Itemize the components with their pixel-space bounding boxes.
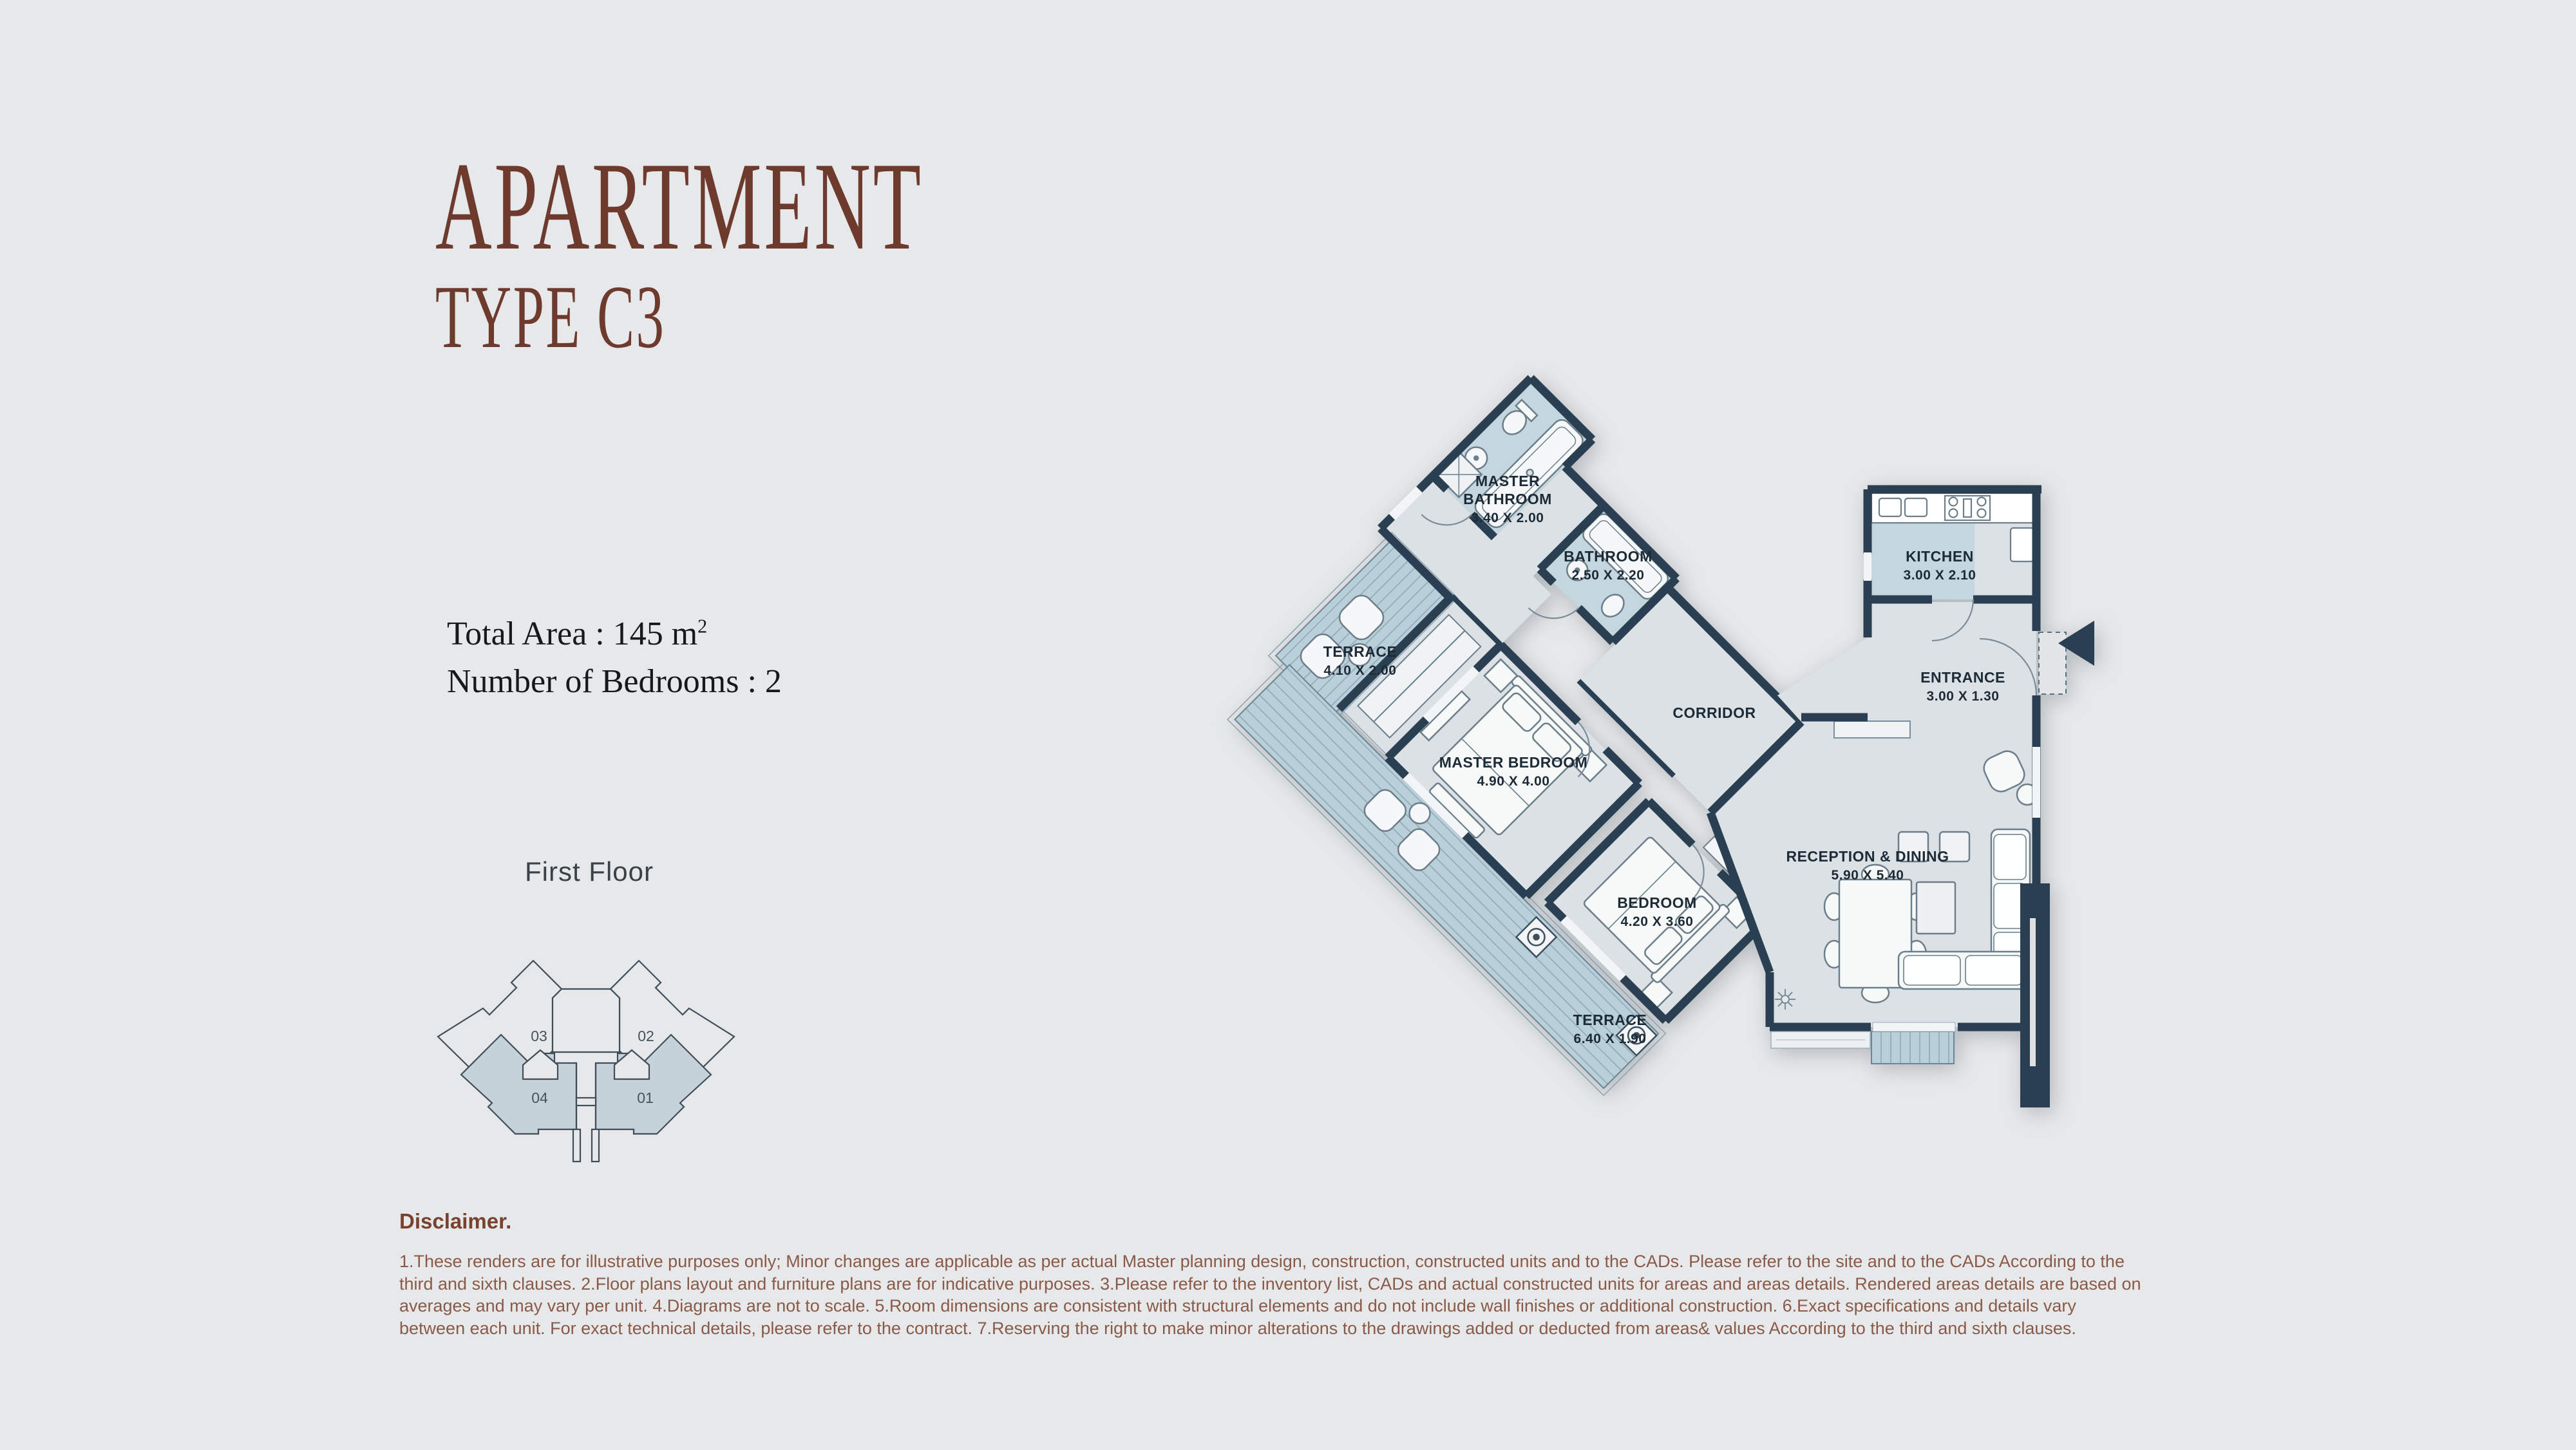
label-kitchen: KITCHEN — [1906, 548, 1974, 565]
bedrooms-line: Number of Bedrooms : 2 — [447, 658, 782, 706]
key-plan-outline — [438, 961, 734, 1162]
disclaimer: Disclaimer. 1.These renders are for illu… — [399, 1209, 2141, 1339]
page-title: APARTMENT — [435, 134, 923, 279]
floor-name: First Floor — [428, 856, 750, 887]
balcony — [1871, 1031, 1954, 1064]
label-corridor: CORRIDOR — [1672, 704, 1756, 721]
kitchen-sink — [1879, 498, 1901, 516]
svg-text:3.40 X 2.00: 3.40 X 2.00 — [1472, 511, 1544, 525]
label-entrance: ENTRANCE — [1920, 669, 2005, 686]
label-terrace-2: TERRACE — [1573, 1012, 1647, 1028]
label-bathroom: BATHROOM — [1564, 548, 1653, 565]
key-plan-unit-04: 04 — [531, 1089, 548, 1106]
svg-text:BATHROOM: BATHROOM — [1463, 491, 1552, 507]
kitchen-sink — [1905, 498, 1927, 516]
disclaimer-title: Disclaimer. — [399, 1209, 2141, 1234]
label-bedroom: BEDROOM — [1617, 894, 1697, 911]
label-terrace-1: TERRACE — [1323, 643, 1397, 660]
floor-plan: MASTER BATHROOM 3.40 X 2.00 BATHROOM 2.5… — [1224, 335, 2125, 1107]
svg-text:5.90 X 5.40: 5.90 X 5.40 — [1832, 868, 1904, 883]
key-plan-core — [553, 989, 620, 1052]
fridge — [2011, 528, 2034, 561]
building-key-plan: 03 02 04 01 — [425, 941, 760, 1173]
svg-text:4.10 X 2.00: 4.10 X 2.00 — [1324, 663, 1397, 678]
squared-sup: 2 — [697, 616, 707, 637]
total-area-line: Total Area : 145 m2 — [447, 610, 782, 658]
apartment-details: Total Area : 145 m2 Number of Bedrooms :… — [447, 610, 782, 706]
key-plan-unit-03: 03 — [531, 1028, 547, 1044]
svg-text:3.00 X 2.10: 3.00 X 2.10 — [1904, 568, 1976, 583]
svg-text:2.50 X 2.20: 2.50 X 2.20 — [1572, 568, 1645, 583]
entry-console — [1834, 721, 1910, 738]
axis-wing — [1710, 489, 2094, 1107]
coffee-table — [1917, 882, 1955, 934]
svg-text:4.90 X 4.00: 4.90 X 4.00 — [1477, 774, 1550, 789]
label-reception: RECEPTION & DINING — [1786, 848, 1949, 865]
svg-text:4.20 X 3.60: 4.20 X 3.60 — [1621, 914, 1694, 929]
label-master-bedroom: MASTER BEDROOM — [1439, 754, 1588, 771]
key-plan-unit-02: 02 — [638, 1028, 654, 1044]
disclaimer-body: 1.These renders are for illustrative pur… — [399, 1250, 2141, 1339]
page: APARTMENT TYPE C3 Total Area : 145 m2 Nu… — [0, 0, 2576, 1450]
key-plan-unit-01: 01 — [637, 1089, 654, 1106]
label-master-bathroom: MASTER — [1475, 473, 1540, 489]
apartment-type: TYPE C3 — [435, 265, 665, 369]
svg-text:6.40 X 1.90: 6.40 X 1.90 — [1574, 1031, 1647, 1046]
svg-text:3.00 X 1.30: 3.00 X 1.30 — [1927, 689, 2000, 704]
